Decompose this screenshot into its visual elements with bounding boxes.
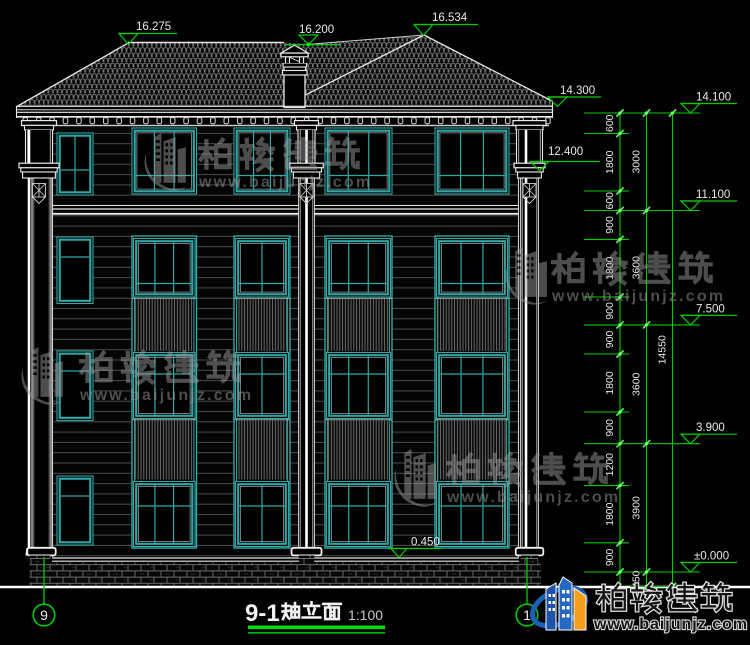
svg-text:www.baijunjz.com: www.baijunjz.com — [593, 616, 748, 633]
svg-text:1800: 1800 — [604, 371, 616, 395]
svg-text:16.200: 16.200 — [299, 24, 334, 36]
svg-text:12.400: 12.400 — [548, 146, 583, 158]
svg-text:9: 9 — [40, 607, 48, 623]
svg-text:9-1: 9-1 — [245, 600, 280, 627]
svg-text:3.900: 3.900 — [696, 422, 725, 434]
svg-text:±0.000: ±0.000 — [694, 551, 729, 563]
svg-text:www.baijunjz.com: www.baijunjz.com — [446, 489, 620, 506]
svg-text:1800: 1800 — [604, 150, 616, 174]
svg-text:11.100: 11.100 — [696, 189, 730, 201]
svg-text:3900: 3900 — [631, 496, 643, 520]
svg-text:www.baijunjz.com: www.baijunjz.com — [551, 288, 725, 305]
svg-text:14.100: 14.100 — [696, 92, 731, 104]
svg-text:14.300: 14.300 — [560, 85, 595, 97]
svg-text:14550: 14550 — [657, 335, 669, 364]
svg-text:7.500: 7.500 — [696, 303, 725, 315]
svg-text:www.baijunjz.com: www.baijunjz.com — [198, 174, 372, 191]
svg-text:16.534: 16.534 — [432, 12, 468, 24]
svg-text:600: 600 — [604, 192, 616, 210]
svg-text:3000: 3000 — [631, 150, 643, 174]
svg-text:900: 900 — [604, 548, 616, 566]
svg-text:3600: 3600 — [631, 372, 643, 396]
svg-text:1:100: 1:100 — [348, 607, 383, 623]
svg-text:www.baijunjz.com: www.baijunjz.com — [79, 387, 253, 404]
svg-text:16.275: 16.275 — [136, 21, 171, 33]
svg-text:900: 900 — [604, 419, 616, 437]
svg-text:1: 1 — [523, 607, 531, 623]
svg-text:0.450: 0.450 — [411, 537, 440, 549]
svg-text:900: 900 — [604, 216, 616, 234]
svg-text:900: 900 — [604, 331, 616, 349]
svg-text:600: 600 — [604, 114, 616, 132]
